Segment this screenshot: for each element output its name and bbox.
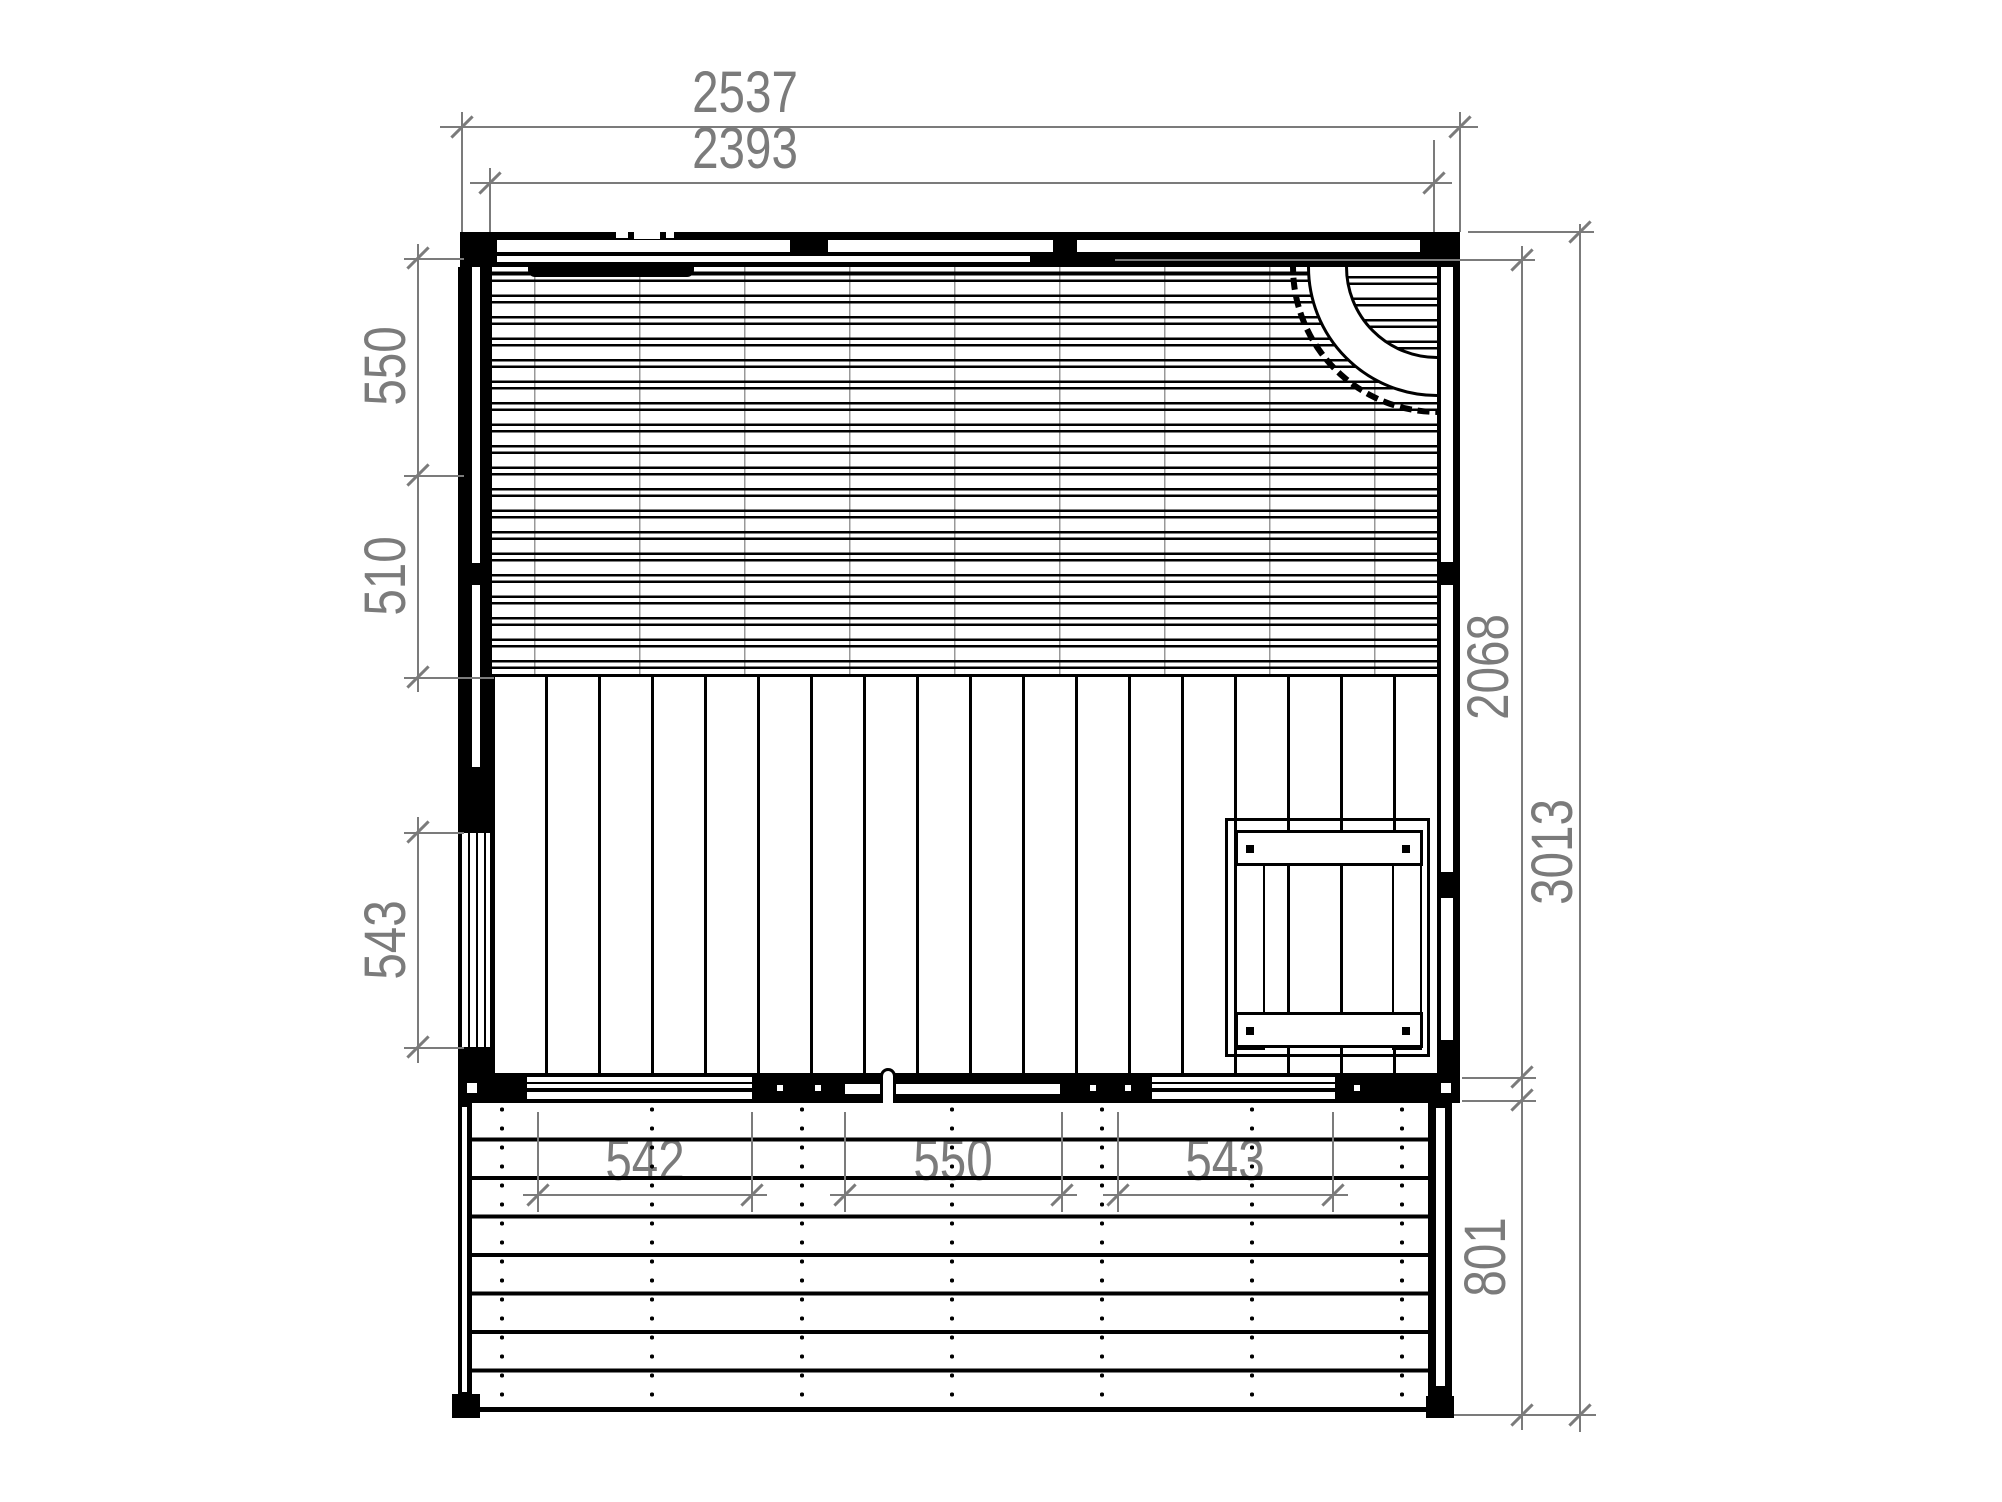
- dim-label-left-window: 543: [357, 900, 415, 979]
- dim-label-terrace-right: 543: [1185, 1132, 1264, 1190]
- wall-post: [1120, 1080, 1136, 1096]
- dim-label-top-inner: 2393: [692, 120, 798, 178]
- terrace-right-rail-stripe: [1436, 1108, 1445, 1386]
- terrace-door-leaf: [842, 1081, 1063, 1097]
- wall-post: [1349, 1080, 1365, 1096]
- top-wall-vent-notch: [634, 232, 660, 239]
- extension-line: [1115, 259, 1535, 261]
- dimension-line-top-inner: [470, 182, 1452, 184]
- right-wall-cavity: [1441, 267, 1453, 562]
- top-wall-vent-notch: [616, 232, 628, 238]
- deck-screw-row: [1400, 1106, 1404, 1406]
- floor-plan-drawing: 2537 2393 550 510 543 2068 3013 801 542 …: [0, 0, 2002, 1502]
- top-wall-vent-notch: [666, 232, 674, 238]
- terrace-left-rail-stripe: [462, 1107, 467, 1392]
- dimension-line-left-upper: [417, 244, 419, 692]
- top-wall-lining-2: [497, 256, 1030, 262]
- left-wall-cavity: [472, 267, 480, 563]
- glazing-line: [527, 1088, 752, 1092]
- left-wall-window: [458, 833, 492, 1047]
- deck-screw-row: [1100, 1106, 1104, 1406]
- deck-screw-row: [500, 1106, 504, 1406]
- dim-label-terrace-door: 550: [913, 1132, 992, 1190]
- right-wall-cavity: [1441, 585, 1453, 872]
- furniture-bottom-rail: [1235, 1012, 1423, 1048]
- bottom-wall-window-right: [1152, 1077, 1335, 1099]
- top-wall-lining: [828, 240, 1053, 252]
- dim-label-left-mid: 510: [357, 536, 415, 615]
- dimension-line-terrace-1: [523, 1194, 767, 1196]
- dim-label-terrace-left: 542: [605, 1132, 684, 1190]
- extension-line: [1462, 1100, 1536, 1102]
- fastener-dot: [1246, 845, 1254, 853]
- door-swing-inner-circle: [1345, 267, 1437, 359]
- corner-post-hole: [467, 1083, 477, 1093]
- right-wall-cavity: [1441, 898, 1453, 1040]
- fastener-dot: [1402, 1027, 1410, 1035]
- glazing-line: [527, 1082, 752, 1084]
- wall-post: [1085, 1080, 1101, 1096]
- furniture-top-rail: [1235, 830, 1423, 866]
- corner-post-hole: [1441, 1083, 1451, 1093]
- dimension-line-terrace-2: [830, 1194, 1077, 1196]
- top-wall-shelf-band: [528, 267, 694, 277]
- dim-label-total-depth: 3013: [1524, 799, 1582, 905]
- extension-line: [1433, 140, 1435, 232]
- top-wall-lining: [1077, 240, 1420, 252]
- extension-line: [461, 112, 463, 232]
- terrace-bottom-edge: [458, 1408, 1452, 1412]
- extension-line: [1454, 1414, 1596, 1416]
- glazing-line: [1152, 1082, 1335, 1084]
- door-swing-inner: [1345, 267, 1437, 359]
- terrace-foot: [452, 1394, 480, 1418]
- left-wall-cavity: [472, 585, 480, 767]
- wall-post: [810, 1080, 826, 1096]
- bottom-wall-window-left: [527, 1077, 752, 1099]
- glazing-line: [1152, 1088, 1335, 1092]
- terrace-foot: [1426, 1396, 1454, 1418]
- dim-label-room-depth: 2068: [1460, 614, 1518, 720]
- extension-line: [489, 168, 491, 232]
- fastener-dot: [1402, 845, 1410, 853]
- furniture-frame: [1225, 818, 1430, 1057]
- dim-label-terrace-depth: 801: [1457, 1217, 1515, 1296]
- top-wall-lining: [497, 240, 790, 252]
- dim-label-top-outer: 2537: [692, 64, 798, 122]
- extension-line: [1459, 112, 1461, 232]
- extension-line: [1462, 1077, 1536, 1079]
- dim-label-left-upper: 550: [357, 326, 415, 405]
- fastener-dot: [1246, 1027, 1254, 1035]
- extension-line: [1468, 231, 1594, 233]
- dimension-line-terrace-3: [1103, 1194, 1348, 1196]
- dimension-line-top-outer: [440, 126, 1478, 128]
- deck-screw-row: [800, 1106, 804, 1406]
- wall-post: [772, 1080, 788, 1096]
